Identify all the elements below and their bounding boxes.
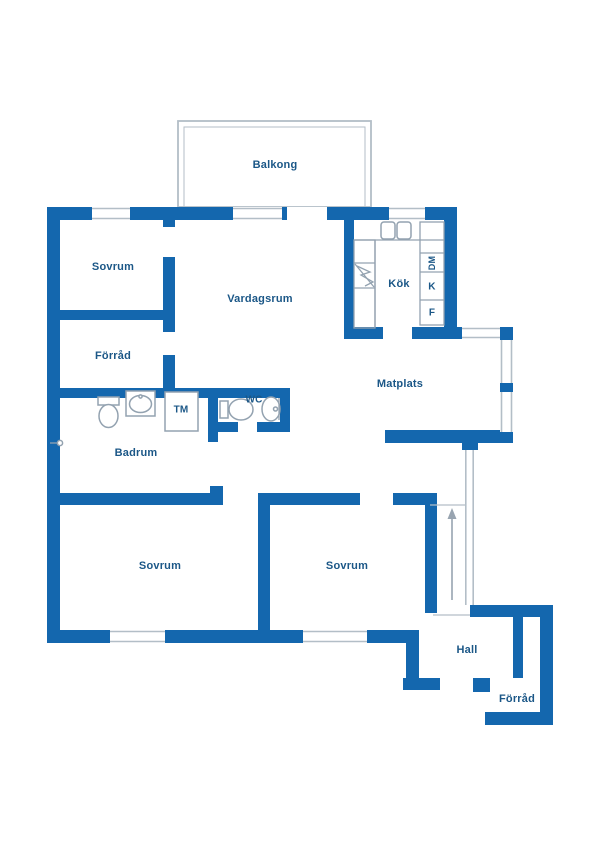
appliance-label-frys: F — [429, 308, 435, 319]
room-label-forrad-se: Förråd — [499, 693, 535, 705]
room-label-forrad-w: Förråd — [95, 350, 131, 362]
appliance-label-dm: DM — [427, 256, 437, 270]
balcony-door-opening — [287, 207, 327, 220]
room-label-wc: WC — [245, 395, 262, 406]
room-label-sovrum-nw: Sovrum — [92, 261, 134, 273]
appliance-label-kyl: K — [428, 282, 435, 293]
stove-icon — [355, 264, 374, 287]
floor-plan: BalkongSovrumVardagsrumFörrådKökMatplats… — [0, 0, 600, 849]
kitchen-sink-icon — [381, 222, 411, 239]
appliance-label-tm: TM — [174, 405, 189, 416]
room-label-balkong: Balkong — [253, 159, 298, 171]
room-label-sovrum-se: Sovrum — [326, 560, 368, 572]
room-label-matplats: Matplats — [377, 378, 423, 390]
toilet-icon — [98, 397, 119, 428]
room-label-badrum: Badrum — [115, 447, 158, 459]
room-label-kok: Kök — [388, 278, 409, 290]
room-label-vardagsrum: Vardagsrum — [227, 293, 293, 305]
corridor-glazing — [466, 450, 473, 605]
entrance-arrow-icon — [448, 508, 457, 600]
bathroom-fixtures — [50, 391, 198, 446]
wc-basin-icon — [262, 397, 280, 421]
room-label-sovrum-sw: Sovrum — [139, 560, 181, 572]
washbasin-icon — [126, 391, 155, 416]
floor-plan-drawing — [0, 0, 600, 849]
room-label-hall: Hall — [457, 644, 478, 656]
